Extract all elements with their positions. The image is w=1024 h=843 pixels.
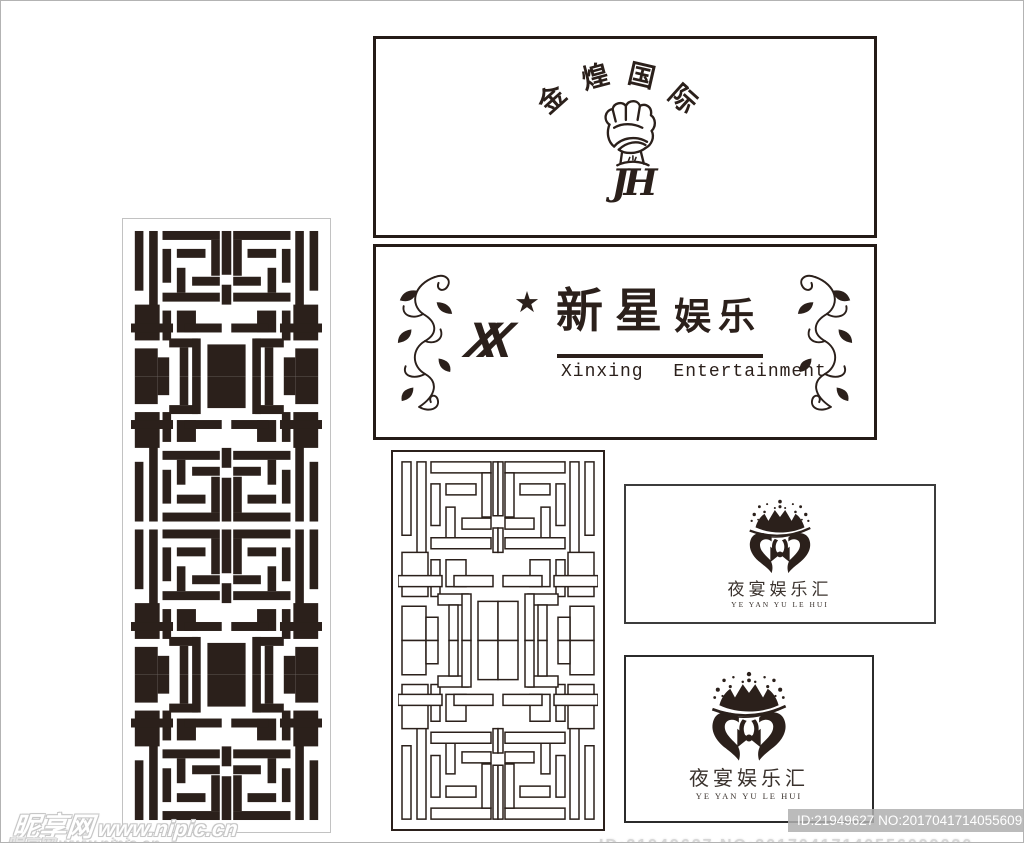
xx-monogram: XX <box>462 315 517 365</box>
clipped-site-watermark: 昵享网 www.nipic.cn <box>7 837 257 843</box>
clipped-id-watermark: ID:21949627 NO:20170417140556099030 <box>599 837 1024 843</box>
jinhuang-monogram: JH <box>584 165 680 201</box>
yeyan-logo-box-small: 夜宴娱乐汇 YE YAN YU LE HUI <box>624 484 936 624</box>
jinhuang-logo-box: 金 煌 国 际 JH <box>373 36 877 238</box>
xinxing-name-cn-2: 娱乐 <box>674 299 762 336</box>
xinxing-logo-box: ★ XX 新星 娱乐 Xinxing Entertainment <box>373 244 877 440</box>
image-id-badge: ID:21949627 NO:20170417140556099030 <box>788 809 1024 832</box>
crown-logo-icon <box>691 671 807 763</box>
lattice-solid-pattern <box>131 227 322 824</box>
crown-logo-icon <box>732 499 828 575</box>
star-icon: ★ <box>514 289 540 318</box>
lattice-outline-pattern <box>398 457 598 824</box>
yeyan-name-en: YE YAN YU LE HUI <box>626 791 872 802</box>
floral-scroll-left-icon <box>394 267 456 417</box>
yeyan-name-cn: 夜宴娱乐汇 <box>626 768 872 791</box>
jinhuang-arc-char-1: 金 <box>533 80 571 118</box>
yeyan-logo-box-large: 夜宴娱乐汇 YE YAN YU LE HUI <box>624 655 874 823</box>
jinhuang-arc-char-2: 煌 <box>579 61 612 94</box>
lattice-panel-solid <box>122 218 331 833</box>
underline-rule <box>557 354 763 358</box>
lattice-panel-outline <box>391 450 605 831</box>
xinxing-name-en: Xinxing Entertainment <box>561 363 827 383</box>
xx-letter-2: X <box>476 312 517 368</box>
floral-scroll-right-icon <box>794 267 856 417</box>
yeyan-name-en: YE YAN YU LE HUI <box>626 600 934 610</box>
design-sheet: 金 煌 国 际 JH ★ XX 新星 娱乐 Xinxing Entertainm… <box>0 0 1024 843</box>
xinxing-name-cn: 新星 <box>556 289 674 336</box>
jinhuang-arc-char-3: 国 <box>625 60 657 92</box>
yeyan-name-cn: 夜宴娱乐汇 <box>626 580 934 600</box>
